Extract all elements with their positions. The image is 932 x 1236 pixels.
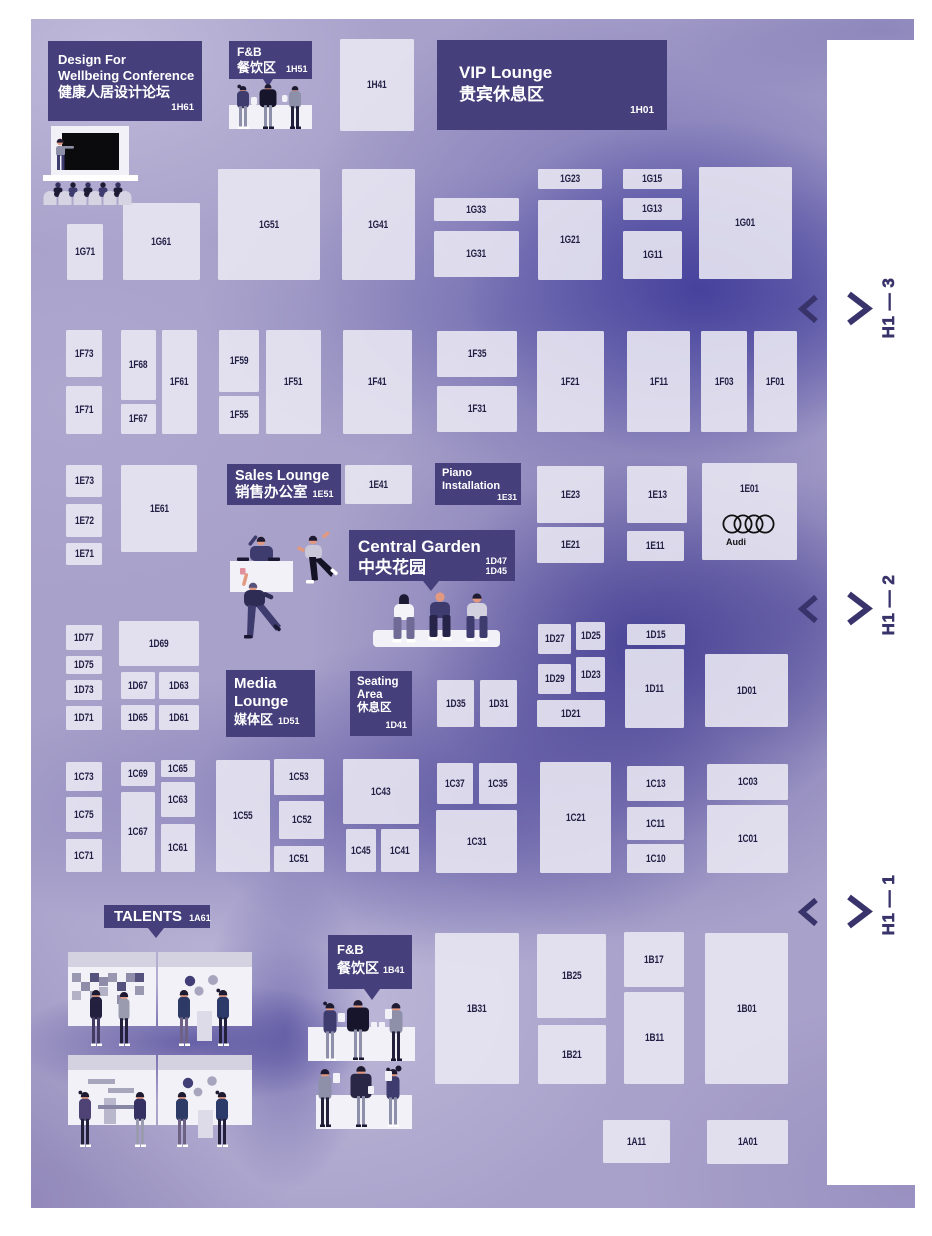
svg-text:Audi: Audi xyxy=(726,537,746,547)
